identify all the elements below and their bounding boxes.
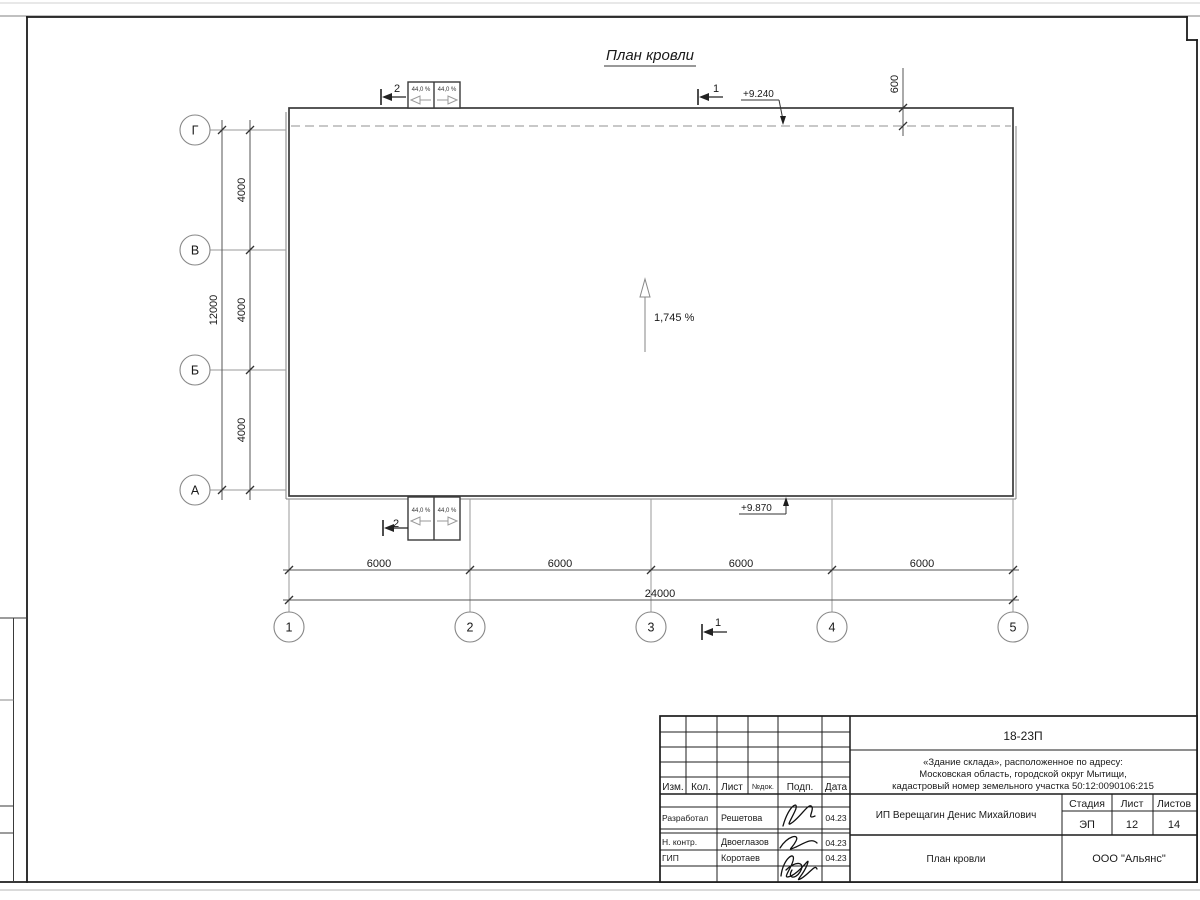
tb-project-line: кадастровый номер земельного участка 50:… xyxy=(892,781,1154,792)
main-slope-label: 1,745 % xyxy=(654,312,695,324)
canopy-bottom: 44,0 % 44,0 % xyxy=(408,497,460,540)
tb-header-izm: Изм. xyxy=(662,782,683,793)
tb-header-podp: Подп. xyxy=(787,782,814,793)
tb-role: ГИП xyxy=(662,853,679,863)
tb-date: 04.23 xyxy=(825,838,847,848)
roof-outline xyxy=(289,108,1013,496)
dim-total-label: 24000 xyxy=(645,588,676,600)
dim-label: 4000 xyxy=(236,418,248,442)
canopy-slope-label: 44,0 % xyxy=(412,508,431,514)
tb-date: 04.23 xyxy=(825,813,847,823)
arrow-left-icon xyxy=(703,628,713,636)
canopy-slope-label: 44,0 % xyxy=(438,508,457,514)
tb-name: Решетова xyxy=(721,813,762,823)
tb-company: ООО "Альянс" xyxy=(1092,853,1166,865)
tb-sheets-value: 14 xyxy=(1168,819,1180,831)
axis-label: 4 xyxy=(829,621,836,635)
axis-label: В xyxy=(191,244,199,258)
tb-sheets-label: Листов xyxy=(1157,798,1192,810)
arrow-left-icon xyxy=(382,93,392,101)
section-label: 1 xyxy=(713,83,719,95)
dim-label: 6000 xyxy=(548,558,572,570)
dim-total-label: 12000 xyxy=(208,295,220,326)
tb-drawing-title: План кровли xyxy=(927,854,986,865)
tb-role: Н. контр. xyxy=(662,837,697,847)
axis-label: 5 xyxy=(1010,621,1017,635)
section-label: 2 xyxy=(393,518,399,530)
dim-label: 6000 xyxy=(910,558,934,570)
roof-plan-canvas: План кровли 44,0 % 44,0 % 44,0 % 44,0 % xyxy=(0,0,1200,900)
tb-header-kol: Кол. xyxy=(691,782,711,793)
canopy-slope-label: 44,0 % xyxy=(438,87,457,93)
axis-label: Г xyxy=(192,124,199,138)
elevation-top-label: +9.240 xyxy=(743,89,774,100)
dim-label: 4000 xyxy=(236,178,248,202)
tb-name: Коротаев xyxy=(721,853,760,863)
dim-label: 600 xyxy=(889,75,901,93)
tb-date: 04.23 xyxy=(825,853,847,863)
tb-sheet-value: 12 xyxy=(1126,819,1138,831)
section-mark-2-top: 2 xyxy=(381,83,406,105)
section-mark-1-top: 1 xyxy=(698,83,723,105)
canopy-top: 44,0 % 44,0 % xyxy=(408,82,460,108)
axis-label: А xyxy=(191,484,200,498)
axis-label: Б xyxy=(191,364,199,378)
elevation-mark-bottom: +9.870 xyxy=(739,497,789,514)
tb-client: ИП Верещагин Денис Михайлович xyxy=(876,810,1037,821)
title-block: Изм. Кол. Лист №док. Подп. Дата Разработ… xyxy=(660,716,1197,882)
drawing-sheet: План кровли 44,0 % 44,0 % 44,0 % 44,0 % xyxy=(0,0,1200,900)
tb-header-data: Дата xyxy=(825,782,848,793)
section-mark-2-bottom: 2 xyxy=(383,518,408,536)
sheet-title: План кровли xyxy=(606,47,695,64)
section-label: 1 xyxy=(715,617,721,629)
tb-sheet-label: Лист xyxy=(1121,798,1144,810)
dim-label: 4000 xyxy=(236,298,248,322)
tb-project-line: Московская область, городской округ Мыти… xyxy=(919,769,1127,780)
axis-label: 1 xyxy=(286,621,293,635)
clipped-side-stamp xyxy=(0,618,27,882)
elevation-bottom-label: +9.870 xyxy=(741,503,772,514)
section-label: 2 xyxy=(394,83,400,95)
tb-project-line: «Здание склада», расположенное по адресу… xyxy=(923,757,1123,768)
dim-label: 6000 xyxy=(729,558,753,570)
tb-header-ndok: №док. xyxy=(752,782,774,791)
arrow-left-icon xyxy=(699,93,709,101)
tb-doc-number: 18-23П xyxy=(1003,729,1042,743)
axis-label: 3 xyxy=(648,621,655,635)
tb-stage-label: Стадия xyxy=(1069,798,1105,810)
tb-role: Разработал xyxy=(662,813,708,823)
canopy-slope-label: 44,0 % xyxy=(412,87,431,93)
dim-label: 6000 xyxy=(367,558,391,570)
axis-label: 2 xyxy=(467,621,474,635)
section-mark-1-bottom: 1 xyxy=(702,617,727,640)
arrow-up-icon xyxy=(783,497,789,506)
tb-name: Двоеглазов xyxy=(721,837,769,847)
tb-header-list: Лист xyxy=(721,782,743,793)
tb-stage-value: ЭП xyxy=(1079,819,1095,831)
